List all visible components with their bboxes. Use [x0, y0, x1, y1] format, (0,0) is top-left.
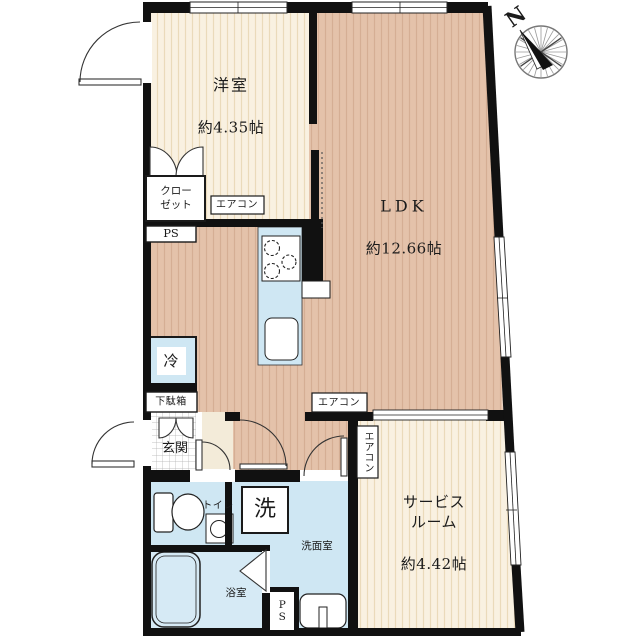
window-top-western: [190, 2, 287, 13]
door-western-out: [79, 22, 141, 85]
shoe-cabinet-label: 下駄箱: [155, 395, 187, 409]
wall-toilet-washroom: [225, 481, 232, 548]
window-top-ldk: [352, 2, 447, 13]
wall-kitchen: [302, 219, 323, 283]
kitchen-counter: [258, 227, 302, 365]
western-room-label: 洋室 約4.35帖: [198, 53, 264, 160]
counter-ledge: [302, 281, 330, 298]
ldk-label: LDK 約12.66帖: [366, 174, 442, 281]
door-entrance: [92, 422, 134, 467]
toilet-fixture: [154, 493, 204, 532]
wall-hall-bottom: [143, 470, 190, 482]
wall-ldk-service: [305, 412, 373, 421]
compass: [515, 26, 567, 78]
closet-label: クロー ゼット: [160, 184, 192, 212]
wall-toilet-bath: [143, 545, 270, 552]
bathroom-label: 浴室: [226, 586, 247, 600]
wall-western-ldk: [309, 6, 317, 124]
vanity-sink: [300, 594, 346, 628]
wall-left: [143, 83, 151, 420]
window-partition-service: [373, 410, 488, 420]
kitchen-sink: [265, 318, 298, 360]
wall-bottom: [143, 628, 521, 636]
aircon-service-label: エアコン: [362, 431, 372, 473]
pipe-space-bottom-label: PS: [277, 599, 288, 623]
stove: [262, 236, 300, 281]
service-room-size: 約4.42帖: [401, 554, 467, 574]
refrigerator-label: 冷: [163, 351, 178, 371]
wall-hall-bottom: [235, 470, 300, 482]
toilet-label: トイレ: [202, 499, 234, 513]
aircon-ldk-label: エアコン: [318, 396, 360, 410]
western-room-size: 約4.35帖: [198, 117, 264, 137]
pipe-space-top-label: PS: [163, 226, 179, 242]
service-room-name: サービス ルーム: [401, 492, 467, 533]
ldk-name: LDK: [366, 195, 442, 217]
wall-left: [143, 2, 151, 22]
floorplan: 洋室 約4.35帖 LDK 約12.66帖 サービス ルーム 約4.42帖 クロ…: [0, 0, 640, 640]
washroom-label: 洗面室: [301, 539, 333, 553]
ldk-size: 約12.66帖: [366, 238, 442, 258]
washing-machine-label: 洗: [254, 495, 276, 525]
western-room-name: 洋室: [198, 74, 264, 96]
service-room-label: サービス ルーム 約4.42帖: [401, 470, 467, 596]
entrance-label: 玄関: [162, 440, 188, 458]
bathtub: [152, 552, 200, 627]
wall-stub: [225, 412, 240, 421]
aircon-western-label: エアコン: [216, 198, 258, 212]
